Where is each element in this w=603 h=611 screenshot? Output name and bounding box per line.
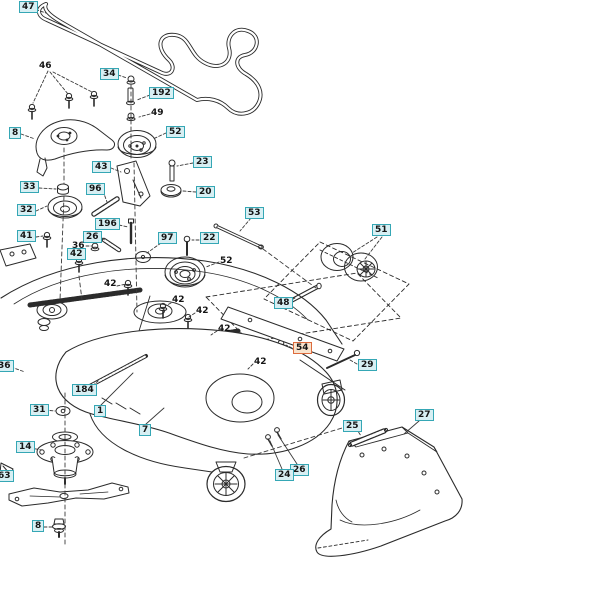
part-label-23[interactable]: 23 [193, 156, 212, 168]
part-label-24[interactable]: 24 [275, 469, 294, 481]
part-label-29[interactable]: 29 [358, 359, 377, 371]
part-label-34[interactable]: 34 [100, 68, 119, 80]
label-layer: 4746341924985243233396203253196412697223… [0, 0, 603, 611]
part-label-20[interactable]: 20 [196, 186, 215, 198]
part-label-27[interactable]: 27 [415, 409, 434, 421]
part-label-42: 42 [104, 279, 117, 289]
part-label-31[interactable]: 31 [30, 404, 49, 416]
part-label-42[interactable]: 42 [67, 248, 86, 260]
part-label-196[interactable]: 196 [95, 218, 120, 230]
part-label-192[interactable]: 192 [149, 87, 174, 99]
part-label-42: 42 [254, 357, 267, 367]
part-label-48[interactable]: 48 [274, 297, 293, 309]
part-label-8[interactable]: 8 [32, 520, 44, 532]
part-label-97[interactable]: 97 [158, 232, 177, 244]
part-label-26[interactable]: 26 [83, 231, 102, 243]
part-label-96[interactable]: 96 [86, 183, 105, 195]
part-label-32[interactable]: 32 [17, 204, 36, 216]
part-label-43[interactable]: 43 [92, 161, 111, 173]
part-label-53[interactable]: 53 [245, 207, 264, 219]
part-label-42: 42 [172, 295, 185, 305]
part-label-41[interactable]: 41 [17, 230, 36, 242]
part-label-36[interactable]: 36 [0, 360, 14, 372]
part-label-52: 52 [220, 256, 233, 266]
part-label-8[interactable]: 8 [9, 127, 21, 139]
part-label-63[interactable]: 63 [0, 470, 14, 482]
part-label-184[interactable]: 184 [72, 384, 97, 396]
part-label-42: 42 [196, 306, 209, 316]
part-label-22[interactable]: 22 [200, 232, 219, 244]
part-label-7[interactable]: 7 [139, 424, 151, 436]
part-label-42: 42 [218, 324, 231, 334]
part-label-46: 46 [39, 61, 52, 71]
part-label-49: 49 [151, 108, 164, 118]
parts-diagram-stage: 4746341924985243233396203253196412697223… [0, 0, 603, 611]
part-label-54-highlighted[interactable]: 54 [293, 342, 312, 354]
part-label-1[interactable]: 1 [94, 405, 106, 417]
part-label-51[interactable]: 51 [372, 224, 391, 236]
part-label-47[interactable]: 47 [19, 1, 38, 13]
part-label-25[interactable]: 25 [343, 420, 362, 432]
part-label-33[interactable]: 33 [20, 181, 39, 193]
part-label-52[interactable]: 52 [166, 126, 185, 138]
part-label-14[interactable]: 14 [16, 441, 35, 453]
